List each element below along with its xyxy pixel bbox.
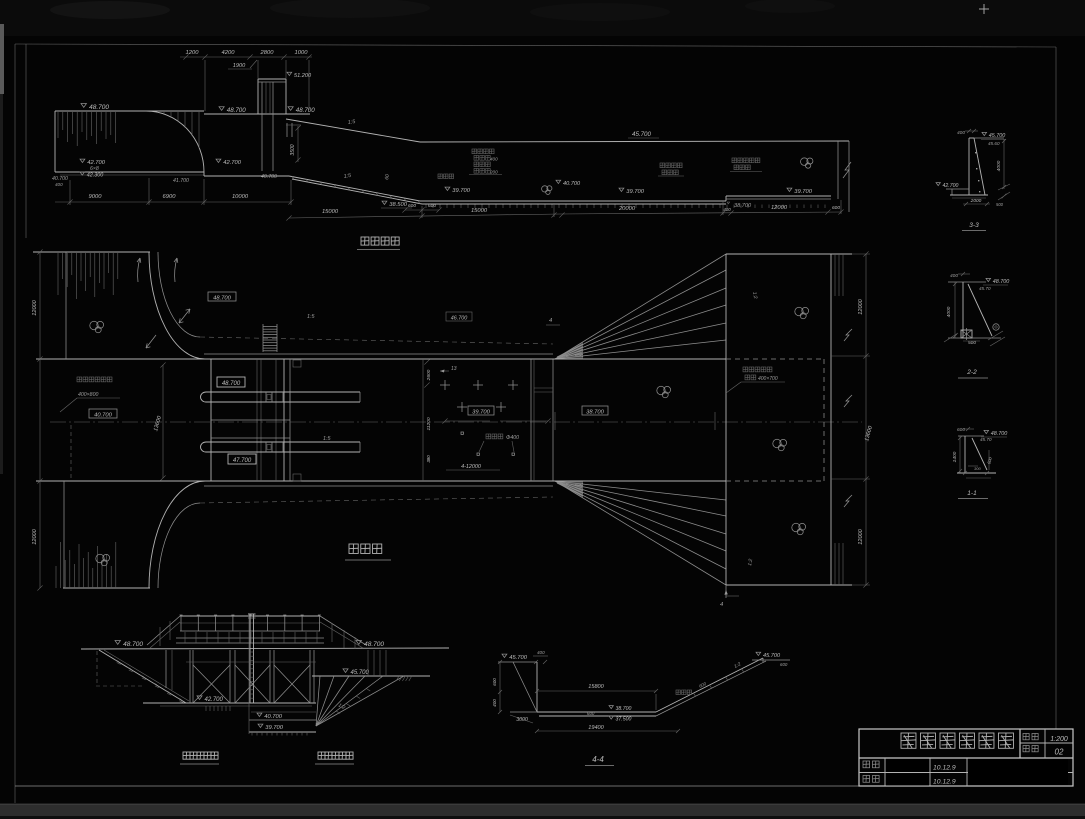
svg-text:45.70: 45.70 xyxy=(979,286,991,291)
svg-text:40.700: 40.700 xyxy=(94,413,113,419)
svg-text:400: 400 xyxy=(950,273,958,279)
svg-text:45.70: 45.70 xyxy=(980,437,992,442)
svg-text:4-4: 4-4 xyxy=(592,755,604,764)
svg-text:1900: 1900 xyxy=(233,63,246,69)
svg-text:48.700: 48.700 xyxy=(213,296,232,302)
svg-text:38.700: 38.700 xyxy=(734,203,752,209)
svg-text:37.500: 37.500 xyxy=(616,717,632,723)
svg-text:1-1: 1-1 xyxy=(967,490,977,497)
svg-text:4: 4 xyxy=(549,318,552,324)
svg-text:39.700: 39.700 xyxy=(265,725,284,731)
svg-text:42.300: 42.300 xyxy=(87,173,104,179)
svg-text:39.700: 39.700 xyxy=(472,410,491,416)
svg-text:42.700: 42.700 xyxy=(943,183,959,189)
svg-text:4200: 4200 xyxy=(222,50,236,56)
svg-text:2800: 2800 xyxy=(260,50,275,56)
svg-text:45.700: 45.700 xyxy=(509,655,528,661)
svg-text:10.12.9: 10.12.9 xyxy=(933,779,956,786)
svg-text:1:5: 1:5 xyxy=(323,436,331,442)
svg-text:47.700: 47.700 xyxy=(233,458,252,464)
svg-text:600: 600 xyxy=(957,427,965,433)
svg-text:45.700: 45.700 xyxy=(351,670,370,676)
svg-text:45.700: 45.700 xyxy=(632,131,651,138)
svg-text:48.700: 48.700 xyxy=(123,641,143,648)
svg-text:48.700: 48.700 xyxy=(89,104,109,111)
svg-text:Φ400: Φ400 xyxy=(506,435,519,441)
svg-text:10000: 10000 xyxy=(232,194,249,200)
svg-text:10.12.9: 10.12.9 xyxy=(933,765,956,772)
svg-text:15800: 15800 xyxy=(588,684,604,690)
svg-text:38.500: 38.500 xyxy=(389,202,408,208)
svg-text:20000: 20000 xyxy=(618,206,636,212)
svg-text:38.700: 38.700 xyxy=(616,706,632,712)
svg-text:48.700: 48.700 xyxy=(296,107,315,114)
svg-text:4000: 4000 xyxy=(996,160,1002,171)
svg-text:12000: 12000 xyxy=(858,298,864,314)
svg-text:42.700: 42.700 xyxy=(223,160,242,166)
svg-text:4000: 4000 xyxy=(946,306,952,317)
svg-text:4: 4 xyxy=(720,602,723,608)
svg-text:41.700: 41.700 xyxy=(173,178,189,184)
svg-text:51.200: 51.200 xyxy=(294,73,312,79)
svg-text:12000: 12000 xyxy=(858,528,864,544)
svg-text:600: 600 xyxy=(428,203,436,209)
svg-text:4-12000: 4-12000 xyxy=(461,464,481,470)
svg-text:39.700: 39.700 xyxy=(626,189,645,195)
svg-text:200: 200 xyxy=(489,170,498,175)
svg-text:12000: 12000 xyxy=(32,299,38,315)
svg-text:400: 400 xyxy=(957,130,965,136)
svg-text:2-2: 2-2 xyxy=(966,369,977,376)
svg-text:600: 600 xyxy=(408,203,416,209)
svg-text:600: 600 xyxy=(492,678,497,686)
svg-text:38.700: 38.700 xyxy=(586,410,605,416)
svg-text:48.700: 48.700 xyxy=(993,279,1010,285)
svg-text:2000: 2000 xyxy=(970,198,982,204)
svg-text:1:200: 1:200 xyxy=(1050,736,1068,743)
svg-text:45.700: 45.700 xyxy=(763,653,781,659)
svg-text:3-3: 3-3 xyxy=(969,222,979,229)
svg-text:11200: 11200 xyxy=(426,417,432,430)
svg-text:1400: 1400 xyxy=(952,451,958,462)
svg-text:6×8: 6×8 xyxy=(90,166,99,172)
svg-text:300: 300 xyxy=(974,466,981,471)
svg-text:3500: 3500 xyxy=(290,144,296,155)
svg-text:6900: 6900 xyxy=(163,194,177,200)
svg-text:40.700: 40.700 xyxy=(264,714,283,720)
svg-text:19400: 19400 xyxy=(588,725,604,731)
svg-text:1:2: 1:2 xyxy=(751,291,758,299)
svg-text:15000: 15000 xyxy=(322,209,339,215)
svg-text:1200: 1200 xyxy=(186,50,200,56)
svg-text:40.700: 40.700 xyxy=(261,174,277,180)
svg-text:46.700: 46.700 xyxy=(451,316,468,322)
svg-text:13: 13 xyxy=(451,366,457,372)
svg-text:02: 02 xyxy=(1055,748,1064,757)
svg-text:42.700: 42.700 xyxy=(205,697,224,703)
svg-text:9000: 9000 xyxy=(89,194,103,200)
svg-text:40.700: 40.700 xyxy=(563,181,581,187)
svg-text:48.700: 48.700 xyxy=(222,381,241,387)
svg-text:400: 400 xyxy=(492,699,497,707)
svg-text:400: 400 xyxy=(537,650,545,655)
svg-text:1000: 1000 xyxy=(295,50,309,56)
svg-text:48.700: 48.700 xyxy=(991,431,1008,437)
svg-text:12000: 12000 xyxy=(32,528,38,544)
svg-text:2600: 2600 xyxy=(426,369,432,381)
svg-text:400: 400 xyxy=(723,207,731,212)
svg-text:39.700: 39.700 xyxy=(452,188,471,194)
svg-text:380: 380 xyxy=(426,455,431,463)
svg-text:600: 600 xyxy=(780,662,788,667)
svg-text:39.700: 39.700 xyxy=(794,189,813,195)
svg-text:400: 400 xyxy=(55,182,63,187)
svg-text:12000: 12000 xyxy=(771,205,788,211)
svg-text:400×800: 400×800 xyxy=(78,392,98,398)
svg-text:1:2: 1:2 xyxy=(747,558,754,566)
svg-text:48.700: 48.700 xyxy=(364,641,384,648)
svg-text:600: 600 xyxy=(587,711,595,716)
svg-text:1:5: 1:5 xyxy=(307,314,315,320)
svg-text:400: 400 xyxy=(490,157,498,162)
svg-text:15000: 15000 xyxy=(471,208,488,214)
svg-text:45.60: 45.60 xyxy=(988,141,1000,146)
svg-text:600: 600 xyxy=(832,205,840,211)
svg-text:48.700: 48.700 xyxy=(227,107,246,114)
svg-text:400×700: 400×700 xyxy=(758,376,778,382)
svg-text:500: 500 xyxy=(996,202,1004,207)
